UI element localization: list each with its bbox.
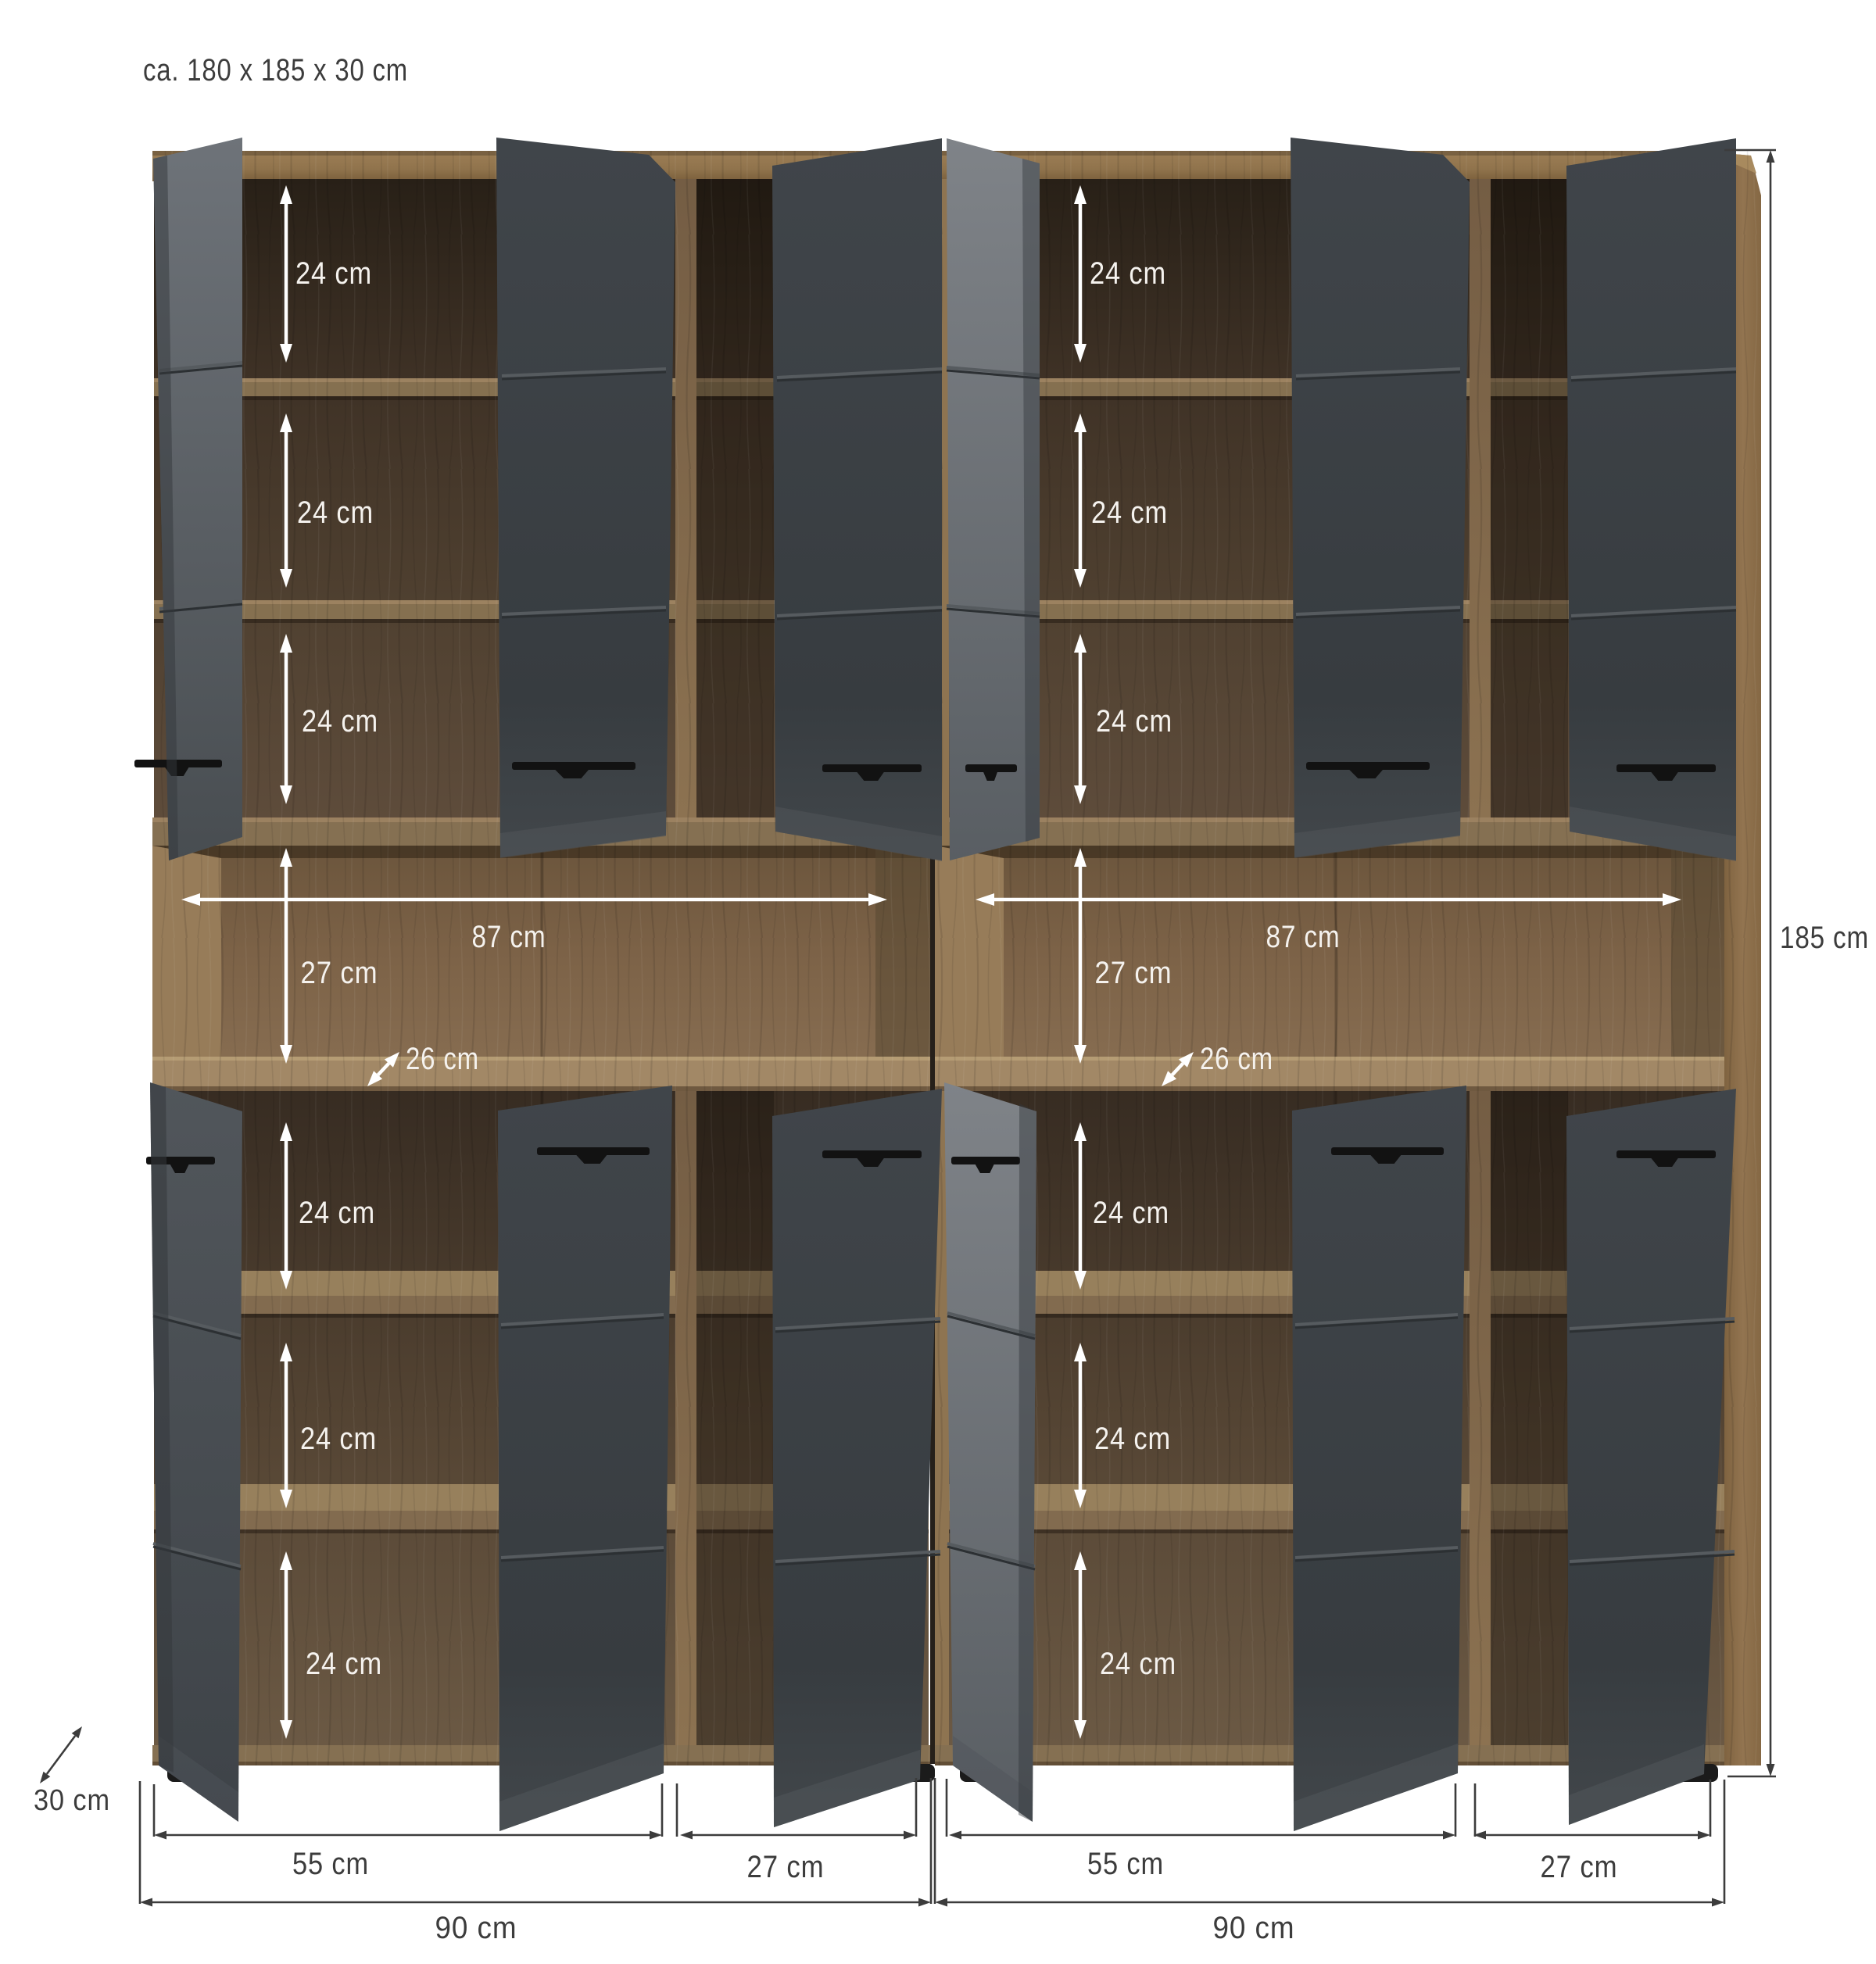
svg-text:24 cm: 24 cm [1100, 1647, 1176, 1681]
svg-text:55 cm: 55 cm [1087, 1847, 1164, 1881]
svg-text:24 cm: 24 cm [1090, 256, 1166, 291]
svg-text:55 cm: 55 cm [292, 1847, 369, 1881]
svg-text:26 cm: 26 cm [406, 1042, 479, 1076]
svg-text:24 cm: 24 cm [299, 1196, 375, 1230]
svg-text:87 cm: 87 cm [1266, 920, 1341, 954]
svg-text:24 cm: 24 cm [295, 256, 372, 291]
svg-text:87 cm: 87 cm [472, 920, 546, 954]
svg-text:24 cm: 24 cm [300, 1422, 377, 1456]
svg-text:90 cm: 90 cm [435, 1911, 517, 1945]
svg-text:27 cm: 27 cm [747, 1850, 825, 1884]
svg-text:30 cm: 30 cm [34, 1784, 110, 1817]
svg-text:24 cm: 24 cm [297, 495, 374, 530]
svg-text:90 cm: 90 cm [1213, 1911, 1295, 1945]
svg-text:24 cm: 24 cm [1096, 704, 1172, 739]
svg-text:27 cm: 27 cm [301, 956, 378, 990]
svg-text:27 cm: 27 cm [1541, 1850, 1618, 1884]
svg-text:24 cm: 24 cm [306, 1647, 382, 1681]
svg-text:24 cm: 24 cm [1091, 495, 1168, 530]
svg-text:24 cm: 24 cm [302, 704, 378, 739]
svg-text:27 cm: 27 cm [1095, 956, 1172, 990]
svg-text:ca. 180 x 185 x 30 cm: ca. 180 x 185 x 30 cm [143, 53, 408, 88]
svg-text:185 cm: 185 cm [1780, 921, 1869, 955]
svg-text:24 cm: 24 cm [1094, 1422, 1171, 1456]
svg-text:24 cm: 24 cm [1093, 1196, 1169, 1230]
svg-text:26 cm: 26 cm [1200, 1042, 1273, 1076]
